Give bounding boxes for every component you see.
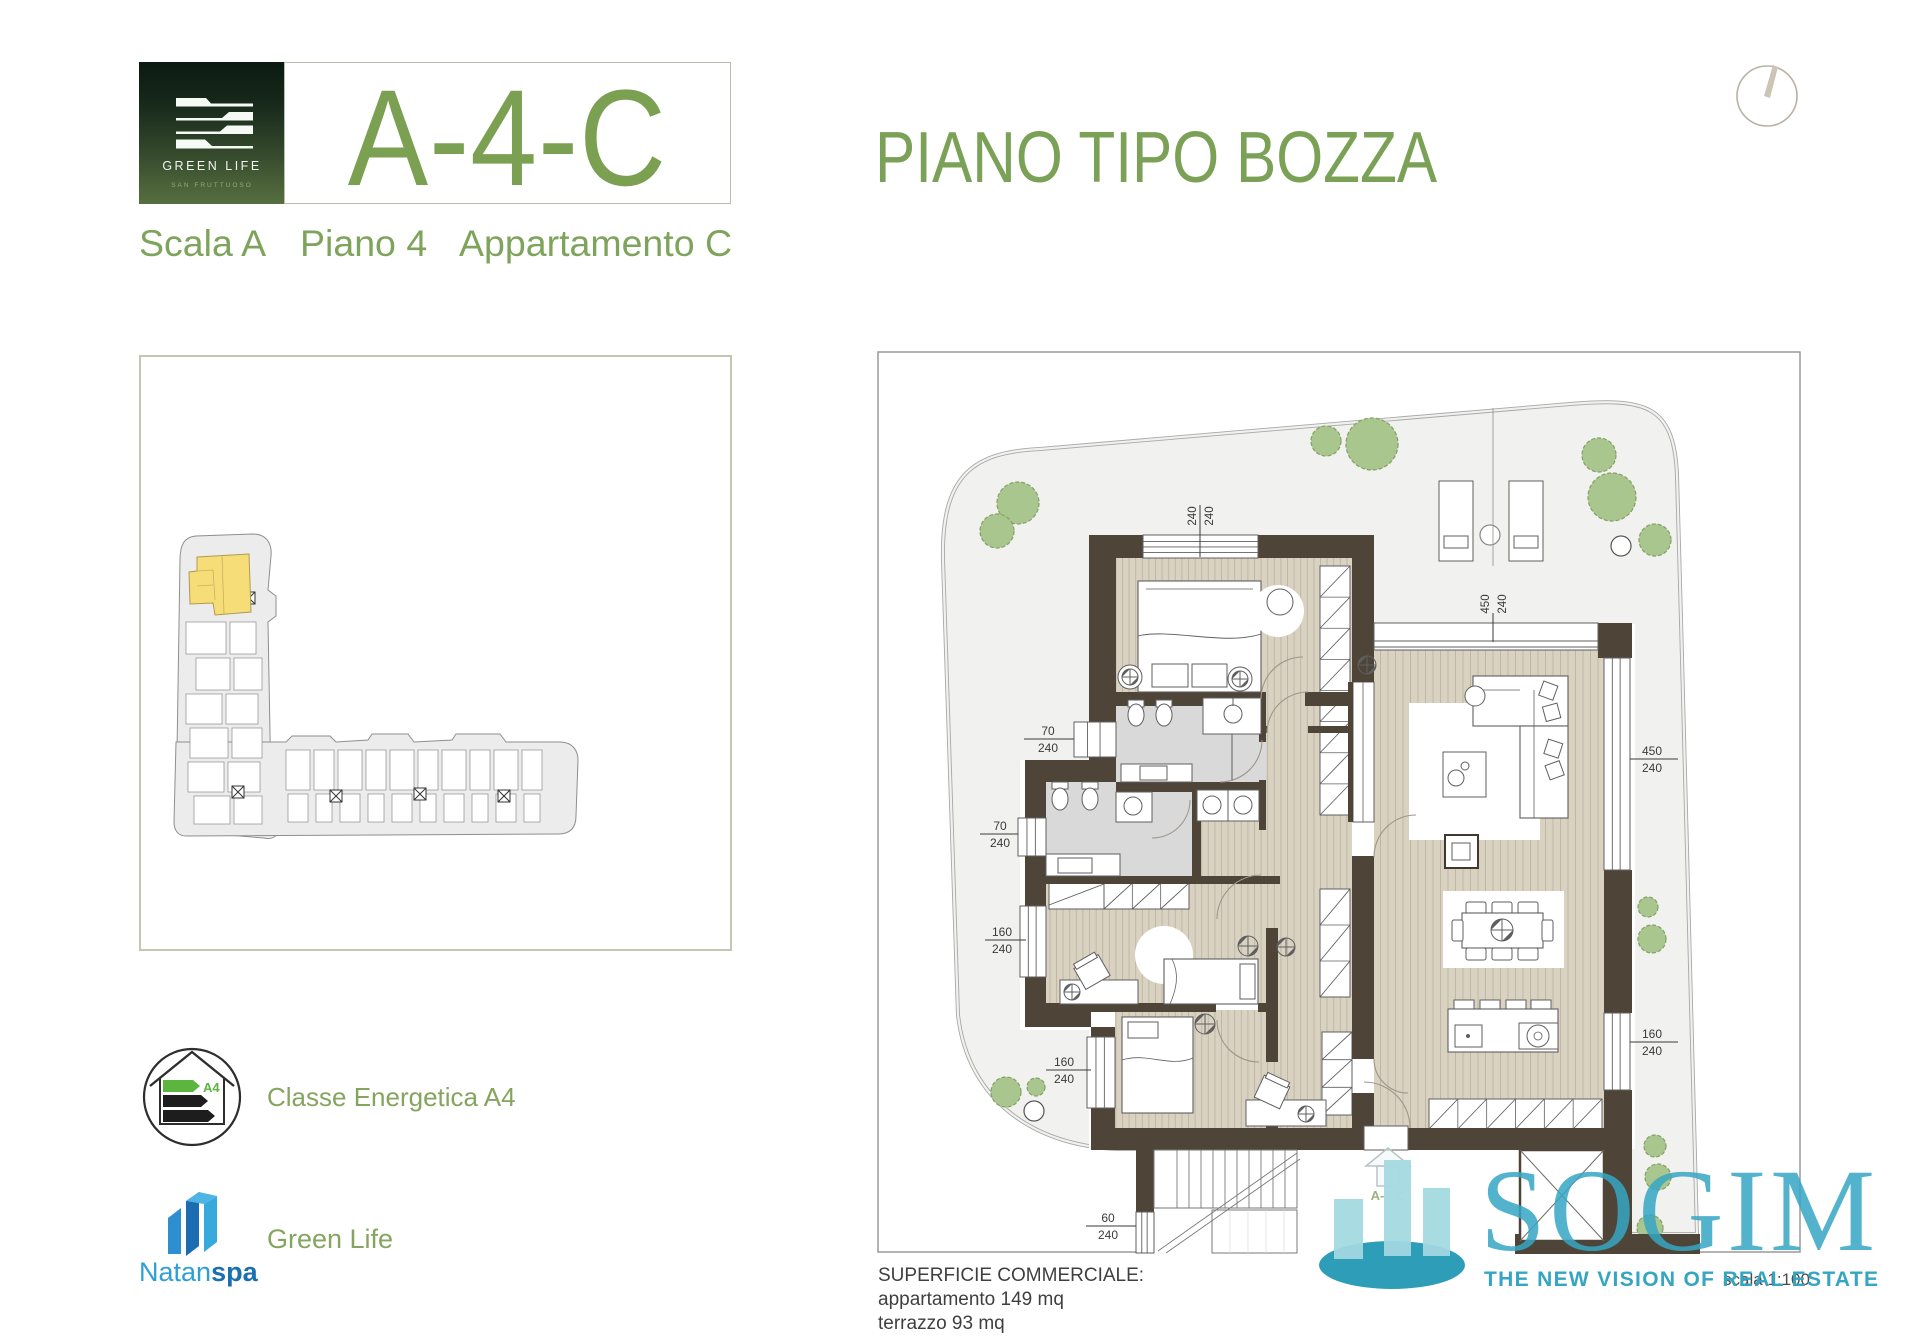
svg-text:240: 240 [1098, 1228, 1118, 1242]
svg-text:160: 160 [1054, 1055, 1074, 1069]
svg-text:SUPERFICIE COMMERCIALE:: SUPERFICIE COMMERCIALE: [878, 1265, 1144, 1286]
svg-text:terrazzo 93 mq: terrazzo 93 mq [878, 1313, 1005, 1334]
svg-text:240: 240 [990, 836, 1010, 850]
svg-text:70: 70 [993, 819, 1007, 833]
svg-text:60: 60 [1101, 1211, 1115, 1225]
svg-text:A4: A4 [203, 1080, 220, 1095]
svg-text:SAN FRUTTUOSO: SAN FRUTTUOSO [171, 182, 253, 189]
svg-text:240: 240 [992, 942, 1012, 956]
svg-text:240: 240 [1204, 506, 1216, 525]
svg-text:appartamento 149 mq: appartamento 149 mq [878, 1289, 1064, 1310]
svg-text:GREEN LIFE: GREEN LIFE [162, 159, 261, 173]
svg-text:240: 240 [1642, 1044, 1662, 1058]
svg-text:THE NEW VISION OF REAL ESTATE: THE NEW VISION OF REAL ESTATE [1484, 1268, 1878, 1291]
svg-text:240: 240 [1642, 761, 1662, 775]
svg-text:70: 70 [1041, 724, 1055, 738]
svg-text:240: 240 [1054, 1072, 1074, 1086]
svg-text:450: 450 [1480, 594, 1492, 613]
svg-text:Natanspa: Natanspa [139, 1257, 259, 1287]
svg-text:240: 240 [1497, 594, 1509, 613]
svg-text:SOGIM: SOGIM [1480, 1145, 1875, 1276]
svg-text:450: 450 [1642, 744, 1662, 758]
svg-text:160: 160 [1642, 1027, 1662, 1041]
svg-text:160: 160 [992, 925, 1012, 939]
svg-text:240: 240 [1038, 741, 1058, 755]
svg-text:240: 240 [1187, 506, 1199, 525]
